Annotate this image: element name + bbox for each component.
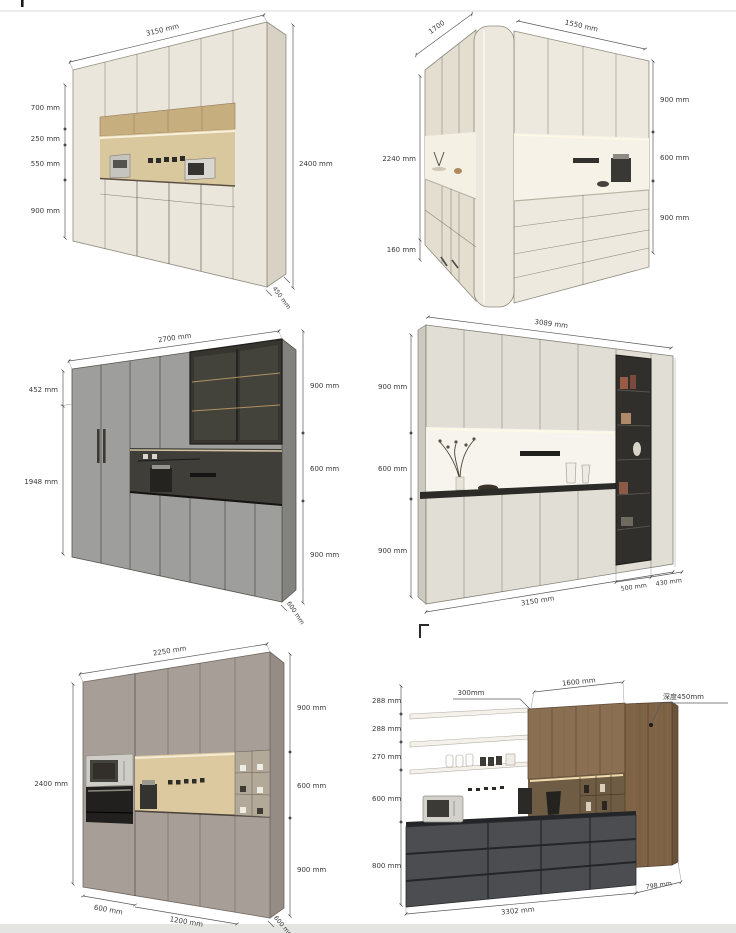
dim-label: 600 mm — [660, 154, 689, 162]
page-corner-tick — [21, 0, 24, 7]
power-sockets — [168, 780, 173, 785]
jar — [466, 754, 473, 766]
panel-gray-coffee-station: 2700 mm 452 mm 1948 mm 900 mm 600 mm 900… — [24, 330, 339, 626]
dim-label: 2700 mm — [157, 332, 192, 345]
diagram-canvas: 3150 mm 700 mm 250 mm 550 mm 900 mm 2400… — [0, 0, 736, 933]
open-bookshelf — [616, 355, 651, 565]
dim-label: 900 mm — [297, 866, 326, 874]
fridge-handle — [103, 429, 106, 463]
dim-label: 600 mm — [285, 600, 306, 626]
bottle — [602, 801, 607, 810]
counter-microwave — [423, 786, 504, 822]
wall-slot — [190, 473, 216, 477]
dim-label: 3150 mm — [145, 22, 180, 38]
bottle — [584, 785, 589, 793]
dim-label: 600 mm — [378, 465, 407, 473]
dim-label: 300mm — [458, 689, 485, 697]
power-sockets — [192, 779, 197, 784]
jar — [496, 756, 502, 765]
shopping-bag — [546, 791, 561, 815]
dim-label: 450 mm — [271, 285, 292, 310]
jar — [480, 757, 486, 766]
dim-label: 800 mm — [372, 862, 401, 870]
panel-taupe-oven-tower: 2250 mm 2400 mm 900 mm 600 mm 900 mm 600… — [34, 643, 326, 933]
cups — [143, 454, 148, 459]
dim-label: 600 mm — [310, 465, 339, 473]
top-strip — [0, 10, 736, 12]
cup-shelves — [235, 750, 270, 817]
dim-label: 600 mm — [297, 782, 326, 790]
dim-label: 900 mm — [378, 547, 407, 555]
stray-mark — [420, 624, 429, 638]
bottle — [600, 784, 605, 792]
box — [506, 754, 515, 765]
coffee-machine — [150, 465, 172, 492]
dim-label: 900 mm — [660, 214, 689, 222]
panel-sideboard-bookshelf: 3089 mm 900 mm 600 mm 900 mm 3150 mm 500… — [378, 317, 682, 612]
dim-label: 2400 mm — [34, 780, 68, 788]
dim-label: 900 mm — [297, 704, 326, 712]
dim-label: 2250 mm — [152, 644, 187, 657]
books — [620, 377, 628, 389]
microwave — [185, 158, 215, 180]
books — [621, 517, 633, 526]
dim-label: 600 mm — [93, 904, 123, 917]
vase — [633, 442, 641, 456]
dim-label: 1948 mm — [24, 478, 58, 486]
dim-label-depth-note: 深度450mm — [663, 692, 704, 701]
oven — [86, 786, 133, 824]
panel-open-shelf-run: 288 mm 288 mm 270 mm 600 mm 800 mm 300mm… — [372, 624, 728, 917]
power-sockets — [184, 779, 189, 784]
bottle — [586, 802, 591, 811]
dim-label: 2240 mm — [382, 155, 416, 163]
panel-corner-cabinet: 1700 1550 mm 2240 mm 160 mm 900 mm 600 m… — [382, 14, 689, 307]
kitchen-cabinet-dimension-sheet: 3150 mm 700 mm 250 mm 550 mm 900 mm 2400… — [0, 0, 736, 933]
books — [630, 375, 636, 389]
power-sockets — [176, 780, 181, 785]
dim-label: 900 mm — [378, 383, 407, 391]
dim-label: 900 mm — [660, 96, 689, 104]
lit-niche — [425, 132, 649, 201]
dim-label: 288 mm — [372, 725, 401, 733]
fridge-handle — [97, 429, 100, 463]
microwave — [86, 754, 133, 787]
coffee-machine — [140, 780, 157, 809]
coffee-machine — [518, 788, 532, 814]
books — [621, 413, 631, 424]
jar — [488, 757, 494, 766]
books — [619, 482, 628, 494]
charcoal-base-unit — [406, 811, 636, 907]
panel-cream-wall-unit: 3150 mm 700 mm 250 mm 550 mm 900 mm 2400… — [31, 14, 333, 311]
decor-figurine — [454, 168, 462, 174]
dim-label: 250 mm — [31, 135, 60, 143]
dim-label: 3150 mm — [520, 594, 555, 607]
dim-label: 452 mm — [29, 386, 58, 394]
dim-label: 600 mm — [372, 795, 401, 803]
dim-label: 700 mm — [31, 104, 60, 112]
wall-shelves — [410, 708, 528, 774]
wall-slot — [520, 451, 560, 456]
espresso-machine — [110, 154, 130, 178]
dim-label: 900 mm — [31, 207, 60, 215]
dim-label: 1600 mm — [562, 676, 597, 687]
dim-label: 1700 — [427, 19, 446, 36]
lit-niche — [420, 427, 616, 499]
dim-label: 900 mm — [310, 382, 339, 390]
cups — [152, 454, 157, 459]
leader-dot — [649, 723, 653, 727]
dim-label: 3302 mm — [501, 905, 535, 916]
dim-label: 500 mm — [620, 582, 647, 593]
dim-label: 550 mm — [31, 160, 60, 168]
dim-label: 160 mm — [387, 246, 416, 254]
power-sockets — [200, 778, 205, 783]
dim-label: 900 mm — [310, 551, 339, 559]
glass-display-cabinet — [190, 339, 282, 444]
dim-label: 1550 mm — [564, 18, 599, 33]
dim-label: 3089 mm — [534, 318, 569, 330]
dim-label: 2400 mm — [299, 160, 333, 168]
dim-label: 798 mm — [645, 880, 672, 891]
power-sockets — [573, 158, 599, 163]
bottom-strip — [0, 924, 736, 933]
jar — [456, 755, 463, 767]
jar — [446, 755, 453, 767]
dim-label: 430 mm — [655, 577, 682, 588]
dim-label: 288 mm — [372, 697, 401, 705]
walnut-upper-cabinet — [528, 703, 625, 779]
dim-label: 270 mm — [372, 753, 401, 761]
